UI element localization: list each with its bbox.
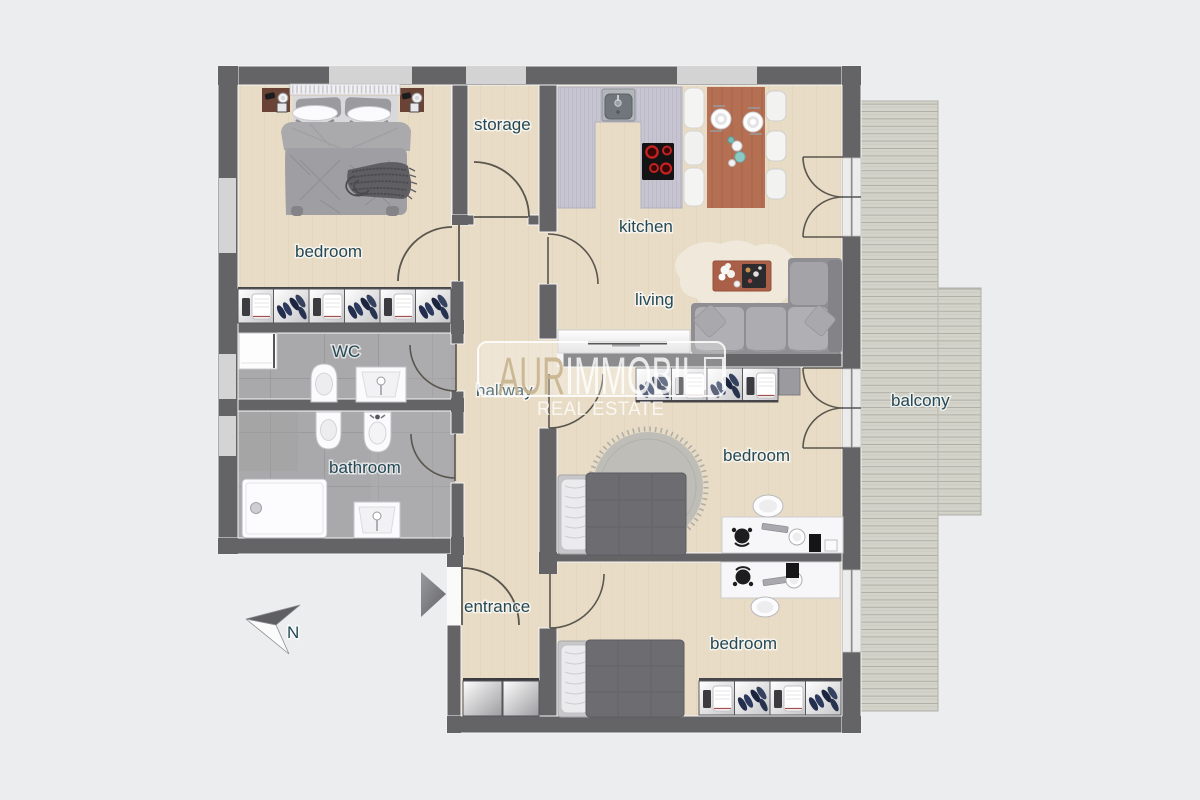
- svg-text:living: living: [635, 290, 674, 309]
- svg-text:bedroom: bedroom: [710, 634, 777, 653]
- svg-text:bedroom: bedroom: [295, 242, 362, 261]
- svg-text:kitchen: kitchen: [619, 217, 673, 236]
- svg-text:WC: WC: [332, 342, 360, 361]
- svg-text:balcony: balcony: [891, 391, 950, 410]
- svg-text:entrance: entrance: [464, 597, 530, 616]
- svg-text:REAL ESTATE: REAL ESTATE: [537, 399, 664, 421]
- svg-text:bedroom: bedroom: [723, 446, 790, 465]
- svg-text:AURIMMOBIL: AURIMMOBIL: [498, 347, 699, 406]
- svg-text:bathroom: bathroom: [329, 458, 401, 477]
- svg-text:storage: storage: [474, 115, 531, 134]
- svg-text:N: N: [287, 623, 299, 642]
